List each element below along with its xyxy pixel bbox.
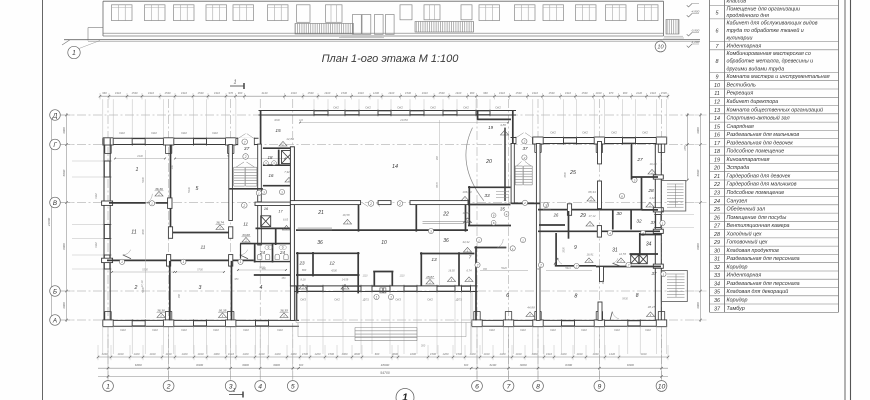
svg-text:1530: 1530	[516, 91, 522, 95]
svg-text:Б: Б	[53, 288, 57, 295]
svg-text:ОК2: ОК2	[581, 328, 587, 332]
svg-text:2: 2	[242, 204, 245, 208]
svg-text:Подсобное помещение: Подсобное помещение	[727, 190, 785, 196]
svg-text:1530: 1530	[165, 91, 171, 95]
svg-text:4,80: 4,80	[500, 123, 506, 127]
svg-text:17: 17	[714, 141, 721, 147]
svg-text:ОК2: ОК2	[94, 193, 98, 199]
svg-text:900: 900	[623, 91, 628, 95]
svg-text:классов: классов	[727, 0, 747, 4]
svg-text:3000: 3000	[62, 302, 66, 309]
svg-text:37: 37	[522, 146, 528, 151]
svg-text:1910: 1910	[532, 91, 538, 95]
svg-text:ОК2: ОК2	[489, 328, 495, 332]
svg-text:1: 1	[136, 167, 139, 173]
svg-text:1530: 1530	[661, 91, 667, 95]
svg-text:Холодный цех: Холодный цех	[726, 230, 762, 237]
svg-text:Кабинет для обслуживающих видо: Кабинет для обслуживающих видов	[727, 20, 818, 26]
svg-text:2: 2	[523, 140, 526, 144]
svg-text:ОК2: ОК2	[365, 106, 371, 110]
svg-text:ОК2: ОК2	[430, 106, 436, 110]
svg-text:12,55: 12,55	[619, 252, 626, 256]
svg-text:3000: 3000	[696, 302, 700, 309]
svg-text:3100: 3100	[489, 363, 496, 367]
svg-text:Кабинет директора: Кабинет директора	[727, 99, 779, 105]
svg-text:ОК2: ОК2	[614, 328, 620, 332]
svg-text:1930: 1930	[137, 154, 143, 158]
svg-text:18: 18	[268, 155, 273, 160]
svg-text:9: 9	[598, 384, 602, 391]
svg-text:21050: 21050	[399, 118, 408, 122]
svg-text:23: 23	[713, 190, 720, 196]
svg-text:20: 20	[713, 166, 720, 172]
svg-text:380: 380	[171, 164, 174, 169]
svg-text:1910: 1910	[577, 352, 583, 356]
svg-text:3000: 3000	[274, 118, 280, 122]
svg-text:1910: 1910	[484, 352, 490, 356]
svg-text:16,50: 16,50	[448, 269, 455, 273]
svg-text:12: 12	[714, 100, 720, 106]
svg-text:30: 30	[714, 248, 720, 254]
svg-text:1: 1	[72, 50, 76, 57]
svg-text:16,91: 16,91	[587, 253, 594, 257]
svg-text:4: 4	[258, 384, 262, 391]
svg-text:28: 28	[647, 188, 654, 194]
svg-text:19: 19	[488, 125, 493, 130]
svg-text:1000: 1000	[214, 352, 220, 356]
svg-text:1910: 1910	[358, 91, 364, 95]
svg-text:12: 12	[329, 261, 335, 267]
svg-text:5700: 5700	[197, 268, 203, 272]
svg-text:21: 21	[713, 174, 720, 180]
svg-text:25: 25	[569, 170, 577, 176]
svg-text:6300: 6300	[135, 363, 142, 367]
svg-text:35: 35	[714, 290, 721, 296]
svg-text:ОК2: ОК2	[333, 106, 339, 110]
svg-text:План 1-ого этажа М 1:100: План 1-ого этажа М 1:100	[322, 53, 460, 65]
svg-text:5930: 5930	[622, 297, 628, 301]
svg-text:2: 2	[476, 263, 479, 267]
svg-text:11: 11	[131, 230, 136, 236]
svg-text:1910: 1910	[596, 91, 602, 95]
svg-text:23: 23	[298, 261, 305, 266]
svg-text:18: 18	[714, 149, 720, 155]
svg-text:1910: 1910	[150, 352, 156, 356]
svg-text:ОК2: ОК2	[277, 328, 283, 332]
svg-text:1: 1	[121, 260, 123, 264]
svg-text:29: 29	[579, 213, 586, 219]
svg-text:1200: 1200	[373, 91, 379, 95]
svg-text:8: 8	[716, 59, 719, 65]
svg-text:1000: 1000	[532, 352, 538, 356]
svg-text:110: 110	[299, 119, 303, 122]
svg-text:1910: 1910	[388, 91, 394, 95]
svg-text:Коридор: Коридор	[727, 297, 748, 303]
svg-text:Коридор: Коридор	[727, 264, 748, 270]
svg-text:4140: 4140	[636, 91, 642, 95]
svg-text:3000: 3000	[696, 127, 700, 134]
svg-text:1910: 1910	[228, 352, 234, 356]
svg-text:11: 11	[714, 91, 720, 97]
svg-text:7: 7	[469, 255, 472, 260]
svg-text:1910: 1910	[516, 352, 522, 356]
svg-text:5: 5	[291, 384, 295, 391]
svg-text:Д: Д	[52, 112, 58, 119]
svg-text:14: 14	[714, 116, 720, 122]
svg-text:1440: 1440	[593, 352, 599, 356]
svg-text:ОК2: ОК2	[94, 242, 98, 248]
svg-text:36: 36	[443, 238, 449, 244]
svg-text:ОК2: ОК2	[645, 328, 651, 332]
svg-text:1910: 1910	[422, 91, 428, 95]
svg-text:34: 34	[714, 281, 720, 287]
svg-text:2: 2	[244, 155, 247, 159]
svg-text:Помещение для организации: Помещение для организации	[727, 7, 801, 13]
svg-text:5930: 5930	[142, 177, 145, 183]
svg-text:8: 8	[574, 294, 577, 300]
svg-text:-0,900: -0,900	[691, 28, 700, 32]
svg-text:5920: 5920	[501, 266, 507, 270]
svg-text:1530: 1530	[308, 91, 314, 95]
svg-text:1000: 1000	[291, 352, 297, 356]
svg-text:10: 10	[714, 83, 720, 89]
svg-text:1910: 1910	[115, 91, 121, 95]
svg-text:32: 32	[636, 219, 642, 225]
svg-text:4,42: 4,42	[649, 196, 655, 200]
svg-text:6: 6	[475, 384, 479, 391]
svg-text:37: 37	[714, 306, 721, 312]
svg-text:2: 2	[627, 263, 630, 267]
svg-text:22: 22	[713, 182, 720, 188]
svg-text:20: 20	[485, 159, 492, 165]
svg-text:Вестибюль: Вестибюль	[727, 82, 756, 88]
svg-text:ОК2: ОК2	[120, 328, 126, 332]
svg-text:1: 1	[183, 260, 185, 264]
svg-text:1110: 1110	[363, 275, 369, 278]
svg-text:1530: 1530	[405, 91, 411, 95]
svg-text:1000: 1000	[410, 352, 416, 356]
svg-text:Кладовая продуктов: Кладовая продуктов	[727, 248, 779, 254]
svg-text:1: 1	[106, 384, 110, 391]
svg-text:1320: 1320	[500, 352, 506, 356]
svg-text:10: 10	[381, 240, 387, 246]
svg-text:1000: 1000	[342, 352, 348, 356]
svg-text:2: 2	[166, 384, 171, 391]
svg-text:ОК3: ОК3	[300, 297, 306, 301]
svg-text:1530: 1530	[341, 91, 347, 95]
svg-text:1500: 1500	[430, 352, 436, 356]
svg-text:25: 25	[713, 207, 721, 213]
svg-text:обработке металла, древесины и: обработке металла, древесины и	[727, 59, 814, 65]
svg-text:3000: 3000	[62, 127, 66, 134]
svg-text:36,36: 36,36	[155, 187, 163, 191]
svg-text:6: 6	[506, 293, 509, 299]
svg-text:10,29: 10,29	[650, 162, 657, 166]
svg-text:3000: 3000	[242, 363, 249, 367]
svg-text:Комната общественных организац: Комната общественных организаций	[727, 106, 824, 113]
svg-text:1440: 1440	[609, 352, 615, 356]
svg-text:3000: 3000	[354, 352, 360, 356]
svg-text:1530: 1530	[132, 91, 138, 95]
svg-text:1: 1	[234, 80, 237, 86]
svg-text:19: 19	[714, 157, 720, 163]
svg-text:28: 28	[713, 232, 720, 238]
svg-text:ОК2: ОК2	[243, 328, 249, 332]
svg-text:960: 960	[483, 91, 488, 95]
svg-text:ОК2: ОК2	[151, 131, 157, 135]
svg-text:3000: 3000	[273, 363, 280, 367]
svg-text:6300: 6300	[627, 363, 634, 367]
svg-text:17,12: 17,12	[589, 214, 596, 218]
svg-text:ОК2: ОК2	[119, 131, 125, 135]
svg-text:31: 31	[714, 257, 720, 263]
svg-text:Спортивно-актовый зал: Спортивно-актовый зал	[727, 115, 790, 122]
svg-text:6300: 6300	[565, 363, 572, 367]
svg-text:16: 16	[714, 133, 720, 139]
svg-text:1440: 1440	[102, 352, 108, 356]
svg-text:2: 2	[369, 202, 372, 206]
svg-text:ДП1: ДП1	[362, 297, 369, 301]
svg-text:27: 27	[713, 224, 721, 230]
svg-text:3000: 3000	[142, 229, 145, 235]
svg-text:6300: 6300	[196, 363, 203, 367]
svg-text:Комбинированная мастерская со: Комбинированная мастерская со	[727, 51, 811, 57]
svg-text:600: 600	[375, 352, 380, 356]
svg-text:другими видами труда: другими видами труда	[727, 66, 785, 72]
svg-text:24: 24	[713, 199, 720, 205]
svg-text:10: 10	[657, 45, 664, 51]
svg-text:3: 3	[199, 285, 202, 291]
svg-text:1: 1	[233, 388, 236, 394]
svg-text:1500: 1500	[302, 352, 308, 356]
svg-text:1910: 1910	[181, 91, 187, 95]
svg-text:44,32: 44,32	[463, 240, 470, 244]
svg-text:3530: 3530	[564, 172, 567, 178]
svg-text:Кладовая для декораций: Кладовая для декораций	[727, 288, 789, 295]
svg-text:Рекреация: Рекреация	[727, 91, 754, 97]
svg-text:ДП1: ДП1	[455, 297, 462, 301]
svg-text:Обеденный зал: Обеденный зал	[727, 206, 766, 213]
svg-text:1910: 1910	[118, 352, 124, 356]
svg-text:33: 33	[714, 273, 720, 279]
svg-text:Раздевальная для девочек: Раздевальная для девочек	[727, 140, 794, 146]
svg-text:35: 35	[500, 207, 505, 212]
svg-text:380: 380	[281, 277, 286, 280]
svg-text:-1,200: -1,200	[691, 40, 700, 44]
svg-text:Комната мастера и инструментал: Комната мастера и инструментальная	[727, 74, 830, 80]
svg-text:960: 960	[470, 91, 475, 95]
svg-text:15: 15	[714, 124, 721, 130]
svg-text:1910: 1910	[148, 91, 154, 95]
svg-text:30: 30	[616, 211, 622, 217]
svg-text:16: 16	[269, 173, 274, 178]
svg-text:36: 36	[714, 298, 720, 304]
svg-text:6,63: 6,63	[283, 218, 289, 222]
svg-text:13: 13	[431, 257, 437, 263]
svg-text:1910: 1910	[259, 352, 265, 356]
svg-text:1910: 1910	[291, 91, 297, 95]
svg-text:5: 5	[196, 186, 199, 192]
svg-text:18900: 18900	[381, 363, 390, 367]
svg-text:Вентиляционная камера: Вентиляционная камера	[727, 223, 790, 229]
svg-text:1530: 1530	[439, 91, 445, 95]
svg-text:Раздевальная для мальчиков: Раздевальная для мальчиков	[727, 132, 800, 138]
svg-text:1910: 1910	[455, 91, 461, 95]
svg-text:6000: 6000	[696, 169, 700, 176]
svg-text:5330: 5330	[142, 268, 148, 272]
svg-text:Санузел: Санузел	[727, 198, 748, 204]
svg-text:-4,800: -4,800	[691, 9, 700, 13]
svg-text:Помещение для посуды: Помещение для посуды	[727, 215, 787, 221]
svg-text:ОК2: ОК2	[427, 297, 433, 301]
svg-text:33,68: 33,68	[242, 233, 250, 237]
svg-text:ОК2: ОК2	[463, 106, 469, 110]
svg-text:31: 31	[612, 248, 618, 254]
svg-text:1910: 1910	[641, 352, 647, 356]
svg-text:Тамбур: Тамбур	[727, 306, 745, 312]
svg-text:1320: 1320	[243, 352, 249, 356]
svg-text:600: 600	[464, 363, 469, 367]
svg-text:37: 37	[651, 220, 656, 225]
svg-text:17,10: 17,10	[140, 280, 144, 287]
svg-text:600: 600	[299, 363, 304, 367]
svg-text:36: 36	[317, 240, 323, 246]
svg-text:8: 8	[536, 384, 540, 391]
svg-text:ОК2: ОК2	[611, 130, 617, 134]
svg-text:1910: 1910	[650, 91, 656, 95]
svg-text:6000: 6000	[62, 169, 66, 176]
svg-text:22: 22	[442, 212, 449, 218]
svg-text:8: 8	[636, 293, 639, 299]
svg-text:2: 2	[523, 201, 526, 205]
svg-text:14: 14	[392, 164, 398, 170]
svg-text:ОК2: ОК2	[550, 130, 556, 134]
svg-text:ОК2: ОК2	[152, 328, 158, 332]
svg-text:8,16: 8,16	[300, 278, 306, 282]
svg-text:11: 11	[201, 245, 206, 251]
svg-text:300: 300	[602, 279, 605, 284]
svg-text:166,63: 166,63	[462, 190, 472, 194]
svg-text:10: 10	[658, 384, 666, 391]
svg-text:ОК2: ОК2	[550, 328, 556, 332]
svg-text:27: 27	[636, 157, 643, 163]
svg-text:труда по обработке тканей и: труда по обработке тканей и	[727, 27, 804, 34]
svg-text:300: 300	[421, 344, 426, 348]
svg-text:1910: 1910	[565, 91, 571, 95]
svg-text:1910: 1910	[324, 91, 330, 95]
svg-text:54700: 54700	[380, 371, 390, 375]
svg-text:кулинарии: кулинарии	[727, 35, 753, 41]
svg-text:1: 1	[240, 260, 242, 264]
svg-text:1530: 1530	[582, 91, 588, 95]
svg-text:Индентарная: Индентарная	[727, 273, 762, 279]
svg-text:900: 900	[262, 268, 267, 271]
svg-text:3000: 3000	[392, 352, 398, 356]
svg-text:44,88: 44,88	[527, 306, 535, 310]
svg-text:ОК2: ОК2	[642, 130, 648, 134]
svg-text:900: 900	[238, 91, 243, 95]
svg-text:1: 1	[376, 295, 378, 299]
svg-text:36,74: 36,74	[216, 221, 224, 225]
svg-text:ОК2: ОК2	[212, 131, 218, 135]
svg-text:Раздевальная для персонала: Раздевальная для персонала	[727, 256, 800, 262]
svg-text:1530: 1530	[549, 91, 555, 95]
svg-text:1: 1	[390, 295, 392, 299]
svg-text:37: 37	[652, 271, 657, 276]
svg-text:970: 970	[609, 91, 614, 95]
svg-text:Эстрада: Эстрада	[727, 165, 750, 171]
svg-text:Гардеробная для мальчиков: Гардеробная для мальчиков	[727, 182, 797, 188]
svg-text:6: 6	[716, 28, 719, 34]
svg-text:900: 900	[436, 155, 439, 160]
svg-text:Индентарная: Индентарная	[727, 43, 762, 49]
svg-text:1320: 1320	[275, 352, 281, 356]
svg-text:ОК2: ОК2	[397, 106, 403, 110]
svg-text:2: 2	[398, 202, 401, 206]
svg-text:960: 960	[102, 91, 107, 95]
svg-text:26: 26	[553, 213, 559, 218]
svg-text:1910: 1910	[546, 352, 552, 356]
svg-text:1910: 1910	[499, 91, 505, 95]
svg-text:9: 9	[574, 245, 577, 251]
svg-text:16,58: 16,58	[463, 211, 470, 215]
svg-text:2: 2	[523, 156, 526, 160]
svg-text:26: 26	[713, 215, 720, 221]
svg-text:1500: 1500	[328, 352, 334, 356]
svg-text:1: 1	[402, 393, 408, 400]
svg-text:13: 13	[714, 108, 720, 114]
svg-text:21: 21	[317, 210, 324, 216]
svg-text:11: 11	[243, 222, 248, 227]
svg-text:48,25: 48,25	[648, 305, 656, 309]
svg-text:продлённого дня: продлённого дня	[727, 13, 770, 19]
svg-text:1200: 1200	[443, 352, 449, 356]
svg-text:2: 2	[539, 263, 542, 267]
svg-text:ОК2: ОК2	[520, 328, 526, 332]
svg-text:29: 29	[713, 240, 720, 246]
svg-text:7: 7	[507, 384, 511, 391]
svg-text:68,34: 68,34	[588, 190, 596, 194]
svg-text:6,74: 6,74	[466, 269, 472, 273]
svg-text:1530: 1530	[198, 91, 204, 95]
svg-text:ОК2: ОК2	[181, 131, 187, 135]
svg-text:Киноаппаратная: Киноаппаратная	[727, 157, 770, 163]
svg-text:Снарядная: Снарядная	[727, 124, 754, 130]
svg-text:970: 970	[229, 91, 234, 95]
svg-text:5911: 5911	[565, 266, 571, 270]
svg-text:4: 4	[260, 285, 263, 291]
svg-text:2: 2	[575, 264, 578, 268]
svg-text:380: 380	[178, 293, 181, 298]
svg-text:7,92: 7,92	[284, 170, 290, 174]
svg-text:380: 380	[234, 278, 239, 281]
svg-text:32: 32	[714, 265, 720, 271]
svg-text:9000: 9000	[62, 243, 66, 250]
svg-text:2: 2	[134, 285, 138, 291]
svg-text:1320: 1320	[134, 352, 140, 356]
svg-text:4200: 4200	[331, 269, 337, 273]
svg-text:5930: 5930	[187, 187, 191, 193]
svg-text:9000: 9000	[696, 243, 700, 250]
svg-text:Готовочный цех: Готовочный цех	[727, 239, 768, 246]
svg-text:4140: 4140	[262, 91, 268, 95]
svg-text:14,59: 14,59	[342, 278, 349, 282]
svg-text:21000: 21000	[47, 217, 51, 227]
svg-text:15: 15	[275, 128, 281, 134]
svg-text:ОК2: ОК2	[495, 106, 501, 110]
svg-text:380: 380	[483, 268, 488, 271]
svg-text:34: 34	[646, 242, 652, 248]
